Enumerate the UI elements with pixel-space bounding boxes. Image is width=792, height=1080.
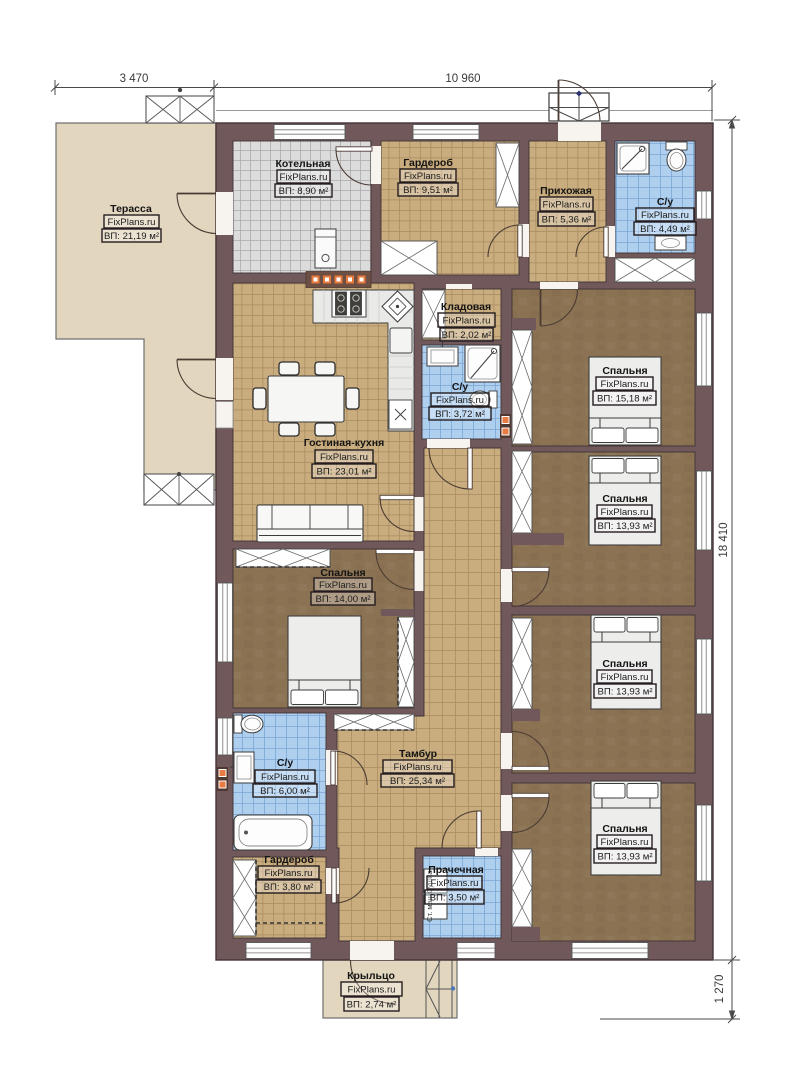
- svg-text:FixPlans.ru: FixPlans.ru: [348, 984, 396, 995]
- svg-text:ВП: 3,80 м²: ВП: 3,80 м²: [264, 882, 315, 893]
- svg-text:Гостиная-кухня: Гостиная-кухня: [304, 437, 384, 449]
- svg-text:FixPlans.ru: FixPlans.ru: [601, 672, 649, 683]
- svg-text:ВП: 5,36 м²: ВП: 5,36 м²: [542, 214, 593, 225]
- svg-text:ВП: 9,51 м²: ВП: 9,51 м²: [403, 185, 454, 196]
- svg-text:FixPlans.ru: FixPlans.ru: [443, 315, 491, 326]
- svg-text:ВП: 3,50 м²: ВП: 3,50 м²: [430, 892, 481, 903]
- svg-text:Прихожая: Прихожая: [540, 185, 592, 197]
- svg-text:ВП: 8,90 м²: ВП: 8,90 м²: [279, 186, 330, 197]
- svg-text:FixPlans.ru: FixPlans.ru: [319, 580, 367, 591]
- svg-text:FixPlans.ru: FixPlans.ru: [108, 217, 156, 228]
- svg-text:FixPlans.ru: FixPlans.ru: [404, 171, 452, 182]
- svg-text:10 960: 10 960: [445, 73, 480, 85]
- svg-text:FixPlans.ru: FixPlans.ru: [436, 395, 484, 406]
- svg-text:Гардероб: Гардероб: [264, 854, 314, 866]
- svg-text:ВП: 23,01 м²: ВП: 23,01 м²: [316, 466, 372, 477]
- svg-text:FixPlans.ru: FixPlans.ru: [394, 762, 442, 773]
- svg-text:Гардероб: Гардероб: [403, 157, 453, 169]
- svg-text:18 410: 18 410: [718, 522, 730, 557]
- svg-text:FixPlans.ru: FixPlans.ru: [601, 507, 649, 518]
- svg-text:С/у: С/у: [657, 196, 674, 208]
- svg-text:Спальня: Спальня: [602, 493, 647, 505]
- svg-text:Кладовая: Кладовая: [441, 301, 491, 313]
- svg-text:ВП: 13,93 м²: ВП: 13,93 м²: [597, 521, 653, 532]
- svg-text:ВП: 3,72 м²: ВП: 3,72 м²: [435, 409, 486, 420]
- svg-text:ВП: 21,19 м²: ВП: 21,19 м²: [104, 231, 160, 242]
- svg-text:FixPlans.ru: FixPlans.ru: [261, 772, 309, 783]
- svg-text:1 270: 1 270: [714, 975, 726, 1004]
- svg-text:FixPlans.ru: FixPlans.ru: [601, 837, 649, 848]
- svg-text:ВП: 14,00 м²: ВП: 14,00 м²: [315, 594, 371, 605]
- svg-text:ВП: 6,00 м²: ВП: 6,00 м²: [260, 786, 311, 797]
- svg-text:FixPlans.ru: FixPlans.ru: [265, 868, 313, 879]
- svg-text:FixPlans.ru: FixPlans.ru: [431, 878, 479, 889]
- svg-text:FixPlans.ru: FixPlans.ru: [601, 379, 649, 390]
- svg-text:Спальня: Спальня: [602, 823, 647, 835]
- svg-text:ВП: 25,34 м²: ВП: 25,34 м²: [390, 776, 446, 787]
- svg-text:ВП: 13,93 м²: ВП: 13,93 м²: [597, 686, 653, 697]
- svg-text:ВП: 15,18 м²: ВП: 15,18 м²: [597, 393, 653, 404]
- svg-text:Спальня: Спальня: [320, 567, 365, 579]
- svg-text:С/у: С/у: [452, 381, 469, 393]
- svg-text:ВП: 2,02 м²: ВП: 2,02 м²: [442, 330, 493, 341]
- svg-text:Спальня: Спальня: [602, 658, 647, 670]
- svg-text:FixPlans.ru: FixPlans.ru: [543, 199, 591, 210]
- svg-text:FixPlans.ru: FixPlans.ru: [641, 210, 689, 221]
- svg-text:ВП: 2,74 м²: ВП: 2,74 м²: [347, 999, 398, 1010]
- svg-text:Тамбур: Тамбур: [399, 748, 437, 760]
- svg-text:Крыльцо: Крыльцо: [347, 970, 395, 982]
- svg-text:FixPlans.ru: FixPlans.ru: [280, 172, 328, 183]
- svg-text:ВП: 4,49 м²: ВП: 4,49 м²: [640, 224, 691, 235]
- svg-text:С/у: С/у: [277, 757, 294, 769]
- svg-text:ВП: 13,93 м²: ВП: 13,93 м²: [597, 851, 653, 862]
- svg-text:FixPlans.ru: FixPlans.ru: [320, 452, 368, 463]
- svg-text:Терасса: Терасса: [110, 203, 152, 215]
- svg-text:3 470: 3 470: [120, 73, 149, 85]
- svg-text:Котельная: Котельная: [276, 158, 331, 170]
- svg-text:Прачечная: Прачечная: [428, 864, 484, 876]
- svg-text:Спальня: Спальня: [602, 365, 647, 377]
